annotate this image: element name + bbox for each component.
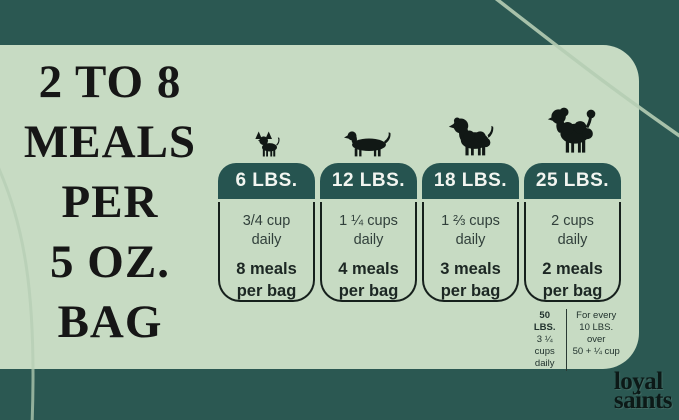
dog-zone [422,95,519,163]
daily-amount: 1 ⅔ cups daily [424,212,517,250]
meals-line2: per bag [322,280,415,302]
chihuahua-icon [252,129,282,159]
logo-line2: saints [614,391,672,410]
column-6lbs: 6 LBS. 3/4 cup daily 8 meals per bag [218,95,315,302]
footnote-left: 50 LBS. 3 ¼ cups daily [524,308,565,372]
title-line-4: 5 OZ. [0,232,220,292]
daily-line1: 3/4 cup [220,212,313,231]
column-body: 1 ⅔ cups daily 3 meals per bag [422,202,519,302]
meals-line2: per bag [526,280,619,302]
meals-line1: 3 meals [424,258,517,280]
daily-line1: 1 ¼ cups [322,212,415,231]
footnote-divider [566,309,567,371]
page-title: 2 TO 8 MEALS PER 5 OZ. BAG [0,52,220,352]
title-line-2: MEALS [0,112,220,172]
title-line-1: 2 TO 8 [0,52,220,112]
footnote-rule-line1: For every [572,310,620,322]
dog-zone [218,95,315,163]
meals-line2: per bag [220,280,313,302]
dog-zone [524,95,621,163]
footnote-daily: daily [528,358,561,370]
weight-header: 18 LBS. [422,163,519,199]
meals-line2: per bag [424,280,517,302]
daily-line2: daily [322,231,415,250]
daily-line2: daily [220,231,313,250]
meals-per-bag: 4 meals per bag [322,258,415,302]
footnote-50lbs: 50 LBS. 3 ¼ cups daily For every 10 LBS.… [524,308,624,372]
daily-line2: daily [526,231,619,250]
meals-line1: 8 meals [220,258,313,280]
spaniel-puppy-icon [447,113,495,159]
column-18lbs: 18 LBS. 1 ⅔ cups daily 3 meals per bag [422,95,519,302]
meals-per-bag: 8 meals per bag [220,258,313,302]
daily-amount: 2 cups daily [526,212,619,250]
footnote-cups: 3 ¼ cups [528,334,561,358]
dachshund-icon [344,127,394,159]
meals-line1: 2 meals [526,258,619,280]
brand-logo: loyal saints [614,372,672,410]
title-line-3: PER [0,172,220,232]
daily-line2: daily [424,231,517,250]
meals-line1: 4 meals [322,258,415,280]
column-body: 1 ¼ cups daily 4 meals per bag [320,202,417,302]
footnote-rule-line3: 50 + ¼ cup [572,346,620,358]
feeding-columns: 6 LBS. 3/4 cup daily 8 meals per bag [218,95,622,302]
footnote-right: For every 10 LBS. over 50 + ¼ cup [568,308,624,372]
poodle-icon [546,103,600,159]
weight-header: 25 LBS. [524,163,621,199]
daily-amount: 1 ¼ cups daily [322,212,415,250]
column-body: 3/4 cup daily 8 meals per bag [218,202,315,302]
daily-line1: 1 ⅔ cups [424,212,517,231]
dog-zone [320,95,417,163]
title-line-5: BAG [0,292,220,352]
column-25lbs: 25 LBS. 2 cups daily 2 meals per bag [524,95,621,302]
weight-header: 6 LBS. [218,163,315,199]
column-body: 2 cups daily 2 meals per bag [524,202,621,302]
footnote-weight: 50 LBS. [528,310,561,334]
footnote-rule-line2: 10 LBS. over [572,322,620,346]
daily-amount: 3/4 cup daily [220,212,313,250]
daily-line1: 2 cups [526,212,619,231]
meals-per-bag: 2 meals per bag [526,258,619,302]
meals-per-bag: 3 meals per bag [424,258,517,302]
weight-header: 12 LBS. [320,163,417,199]
column-12lbs: 12 LBS. 1 ¼ cups daily 4 meals per bag [320,95,417,302]
